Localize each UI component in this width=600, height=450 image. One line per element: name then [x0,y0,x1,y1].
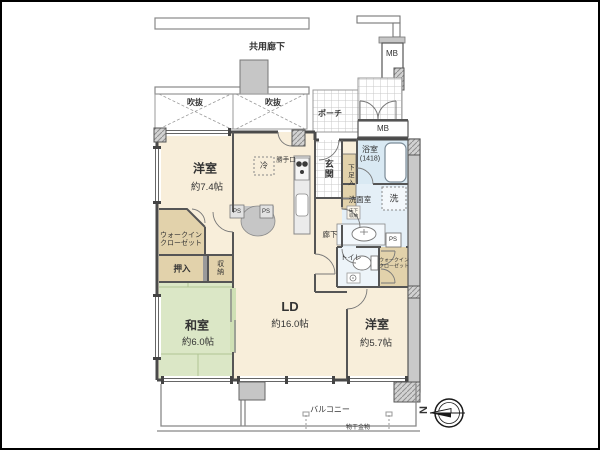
north-compass-icon [430,399,465,427]
balcony-column [239,382,265,400]
label-living-dining-name: LD [281,300,298,314]
label-compass-north: N [419,406,431,414]
label-bedroom1-name: 洋室 [193,163,217,176]
label-washroom: 洗面室 [349,196,372,204]
floor-plan-canvas [2,2,600,450]
label-meter-box-top: MB [386,50,398,58]
label-bedroom2-size: 約5.7帖 [360,339,392,349]
floor-plan: 共用廊下 MB 吹抜 吹抜 ポーチ MB 洋室 約7.4帖 冷 勝手口 玄関 下… [0,0,600,450]
void-areas [155,94,307,129]
label-porch: ポーチ [318,110,342,118]
label-underfloor-storage: 床下 収納 [349,207,358,217]
label-closet: 収納 [216,260,223,276]
label-walkin-closet-left: ウォークイン クローゼット [160,232,202,248]
label-pipe-space-2: PS [262,209,270,215]
label-hallway: 廊下 [323,231,338,239]
label-pipe-space-1: PS [233,209,241,215]
wash-basin-icon [337,224,385,245]
label-washer: 洗 [389,194,398,203]
label-void-right: 吹抜 [265,99,281,107]
right-outer-wall [408,139,420,392]
label-bathroom-size: (1418) [360,155,380,162]
label-japanese-room-name: 和室 [185,320,209,333]
label-shared-corridor: 共用廊下 [249,42,285,51]
kitchen-counter [294,156,310,234]
sliding-door-japanese-room [230,288,236,353]
label-oshiire: 押入 [173,265,190,274]
label-balcony: バルコニー [310,406,350,414]
label-living-dining-size: 約16.0帖 [271,320,309,330]
stove-icon [295,158,309,180]
label-back-door: 勝手口 [276,158,296,165]
bathtub-icon [385,143,406,182]
sink-icon [296,194,308,216]
label-wic-left-line1: ウォークイン [160,232,202,239]
label-refrigerator: 冷 [260,162,268,170]
label-shoe-box: 下足入 [346,164,353,187]
label-bedroom1-size: 約7.4帖 [191,183,223,193]
label-void-left: 吹抜 [187,99,203,107]
balcony-structure [157,384,420,431]
label-wic-right-line2: クローゼット [379,263,409,269]
label-japanese-room-size: 約6.0帖 [182,338,214,348]
label-walkin-closet-right: ウォークイン クローゼット [379,258,409,270]
shared-corridor [155,18,309,94]
label-underfloor-line2: 収納 [349,213,358,218]
label-entrance: 玄関 [323,159,332,179]
label-toilet: トイレ [341,254,362,261]
label-drying-fixture: 物干金物 [346,425,370,431]
label-bedroom2-name: 洋室 [365,319,389,332]
label-meter-box-mid: MB [377,125,389,133]
label-pipe-space-3: PS [389,237,397,243]
label-wic-left-line2: クローゼット [160,240,202,247]
label-bathroom-name: 浴室 [362,146,378,154]
